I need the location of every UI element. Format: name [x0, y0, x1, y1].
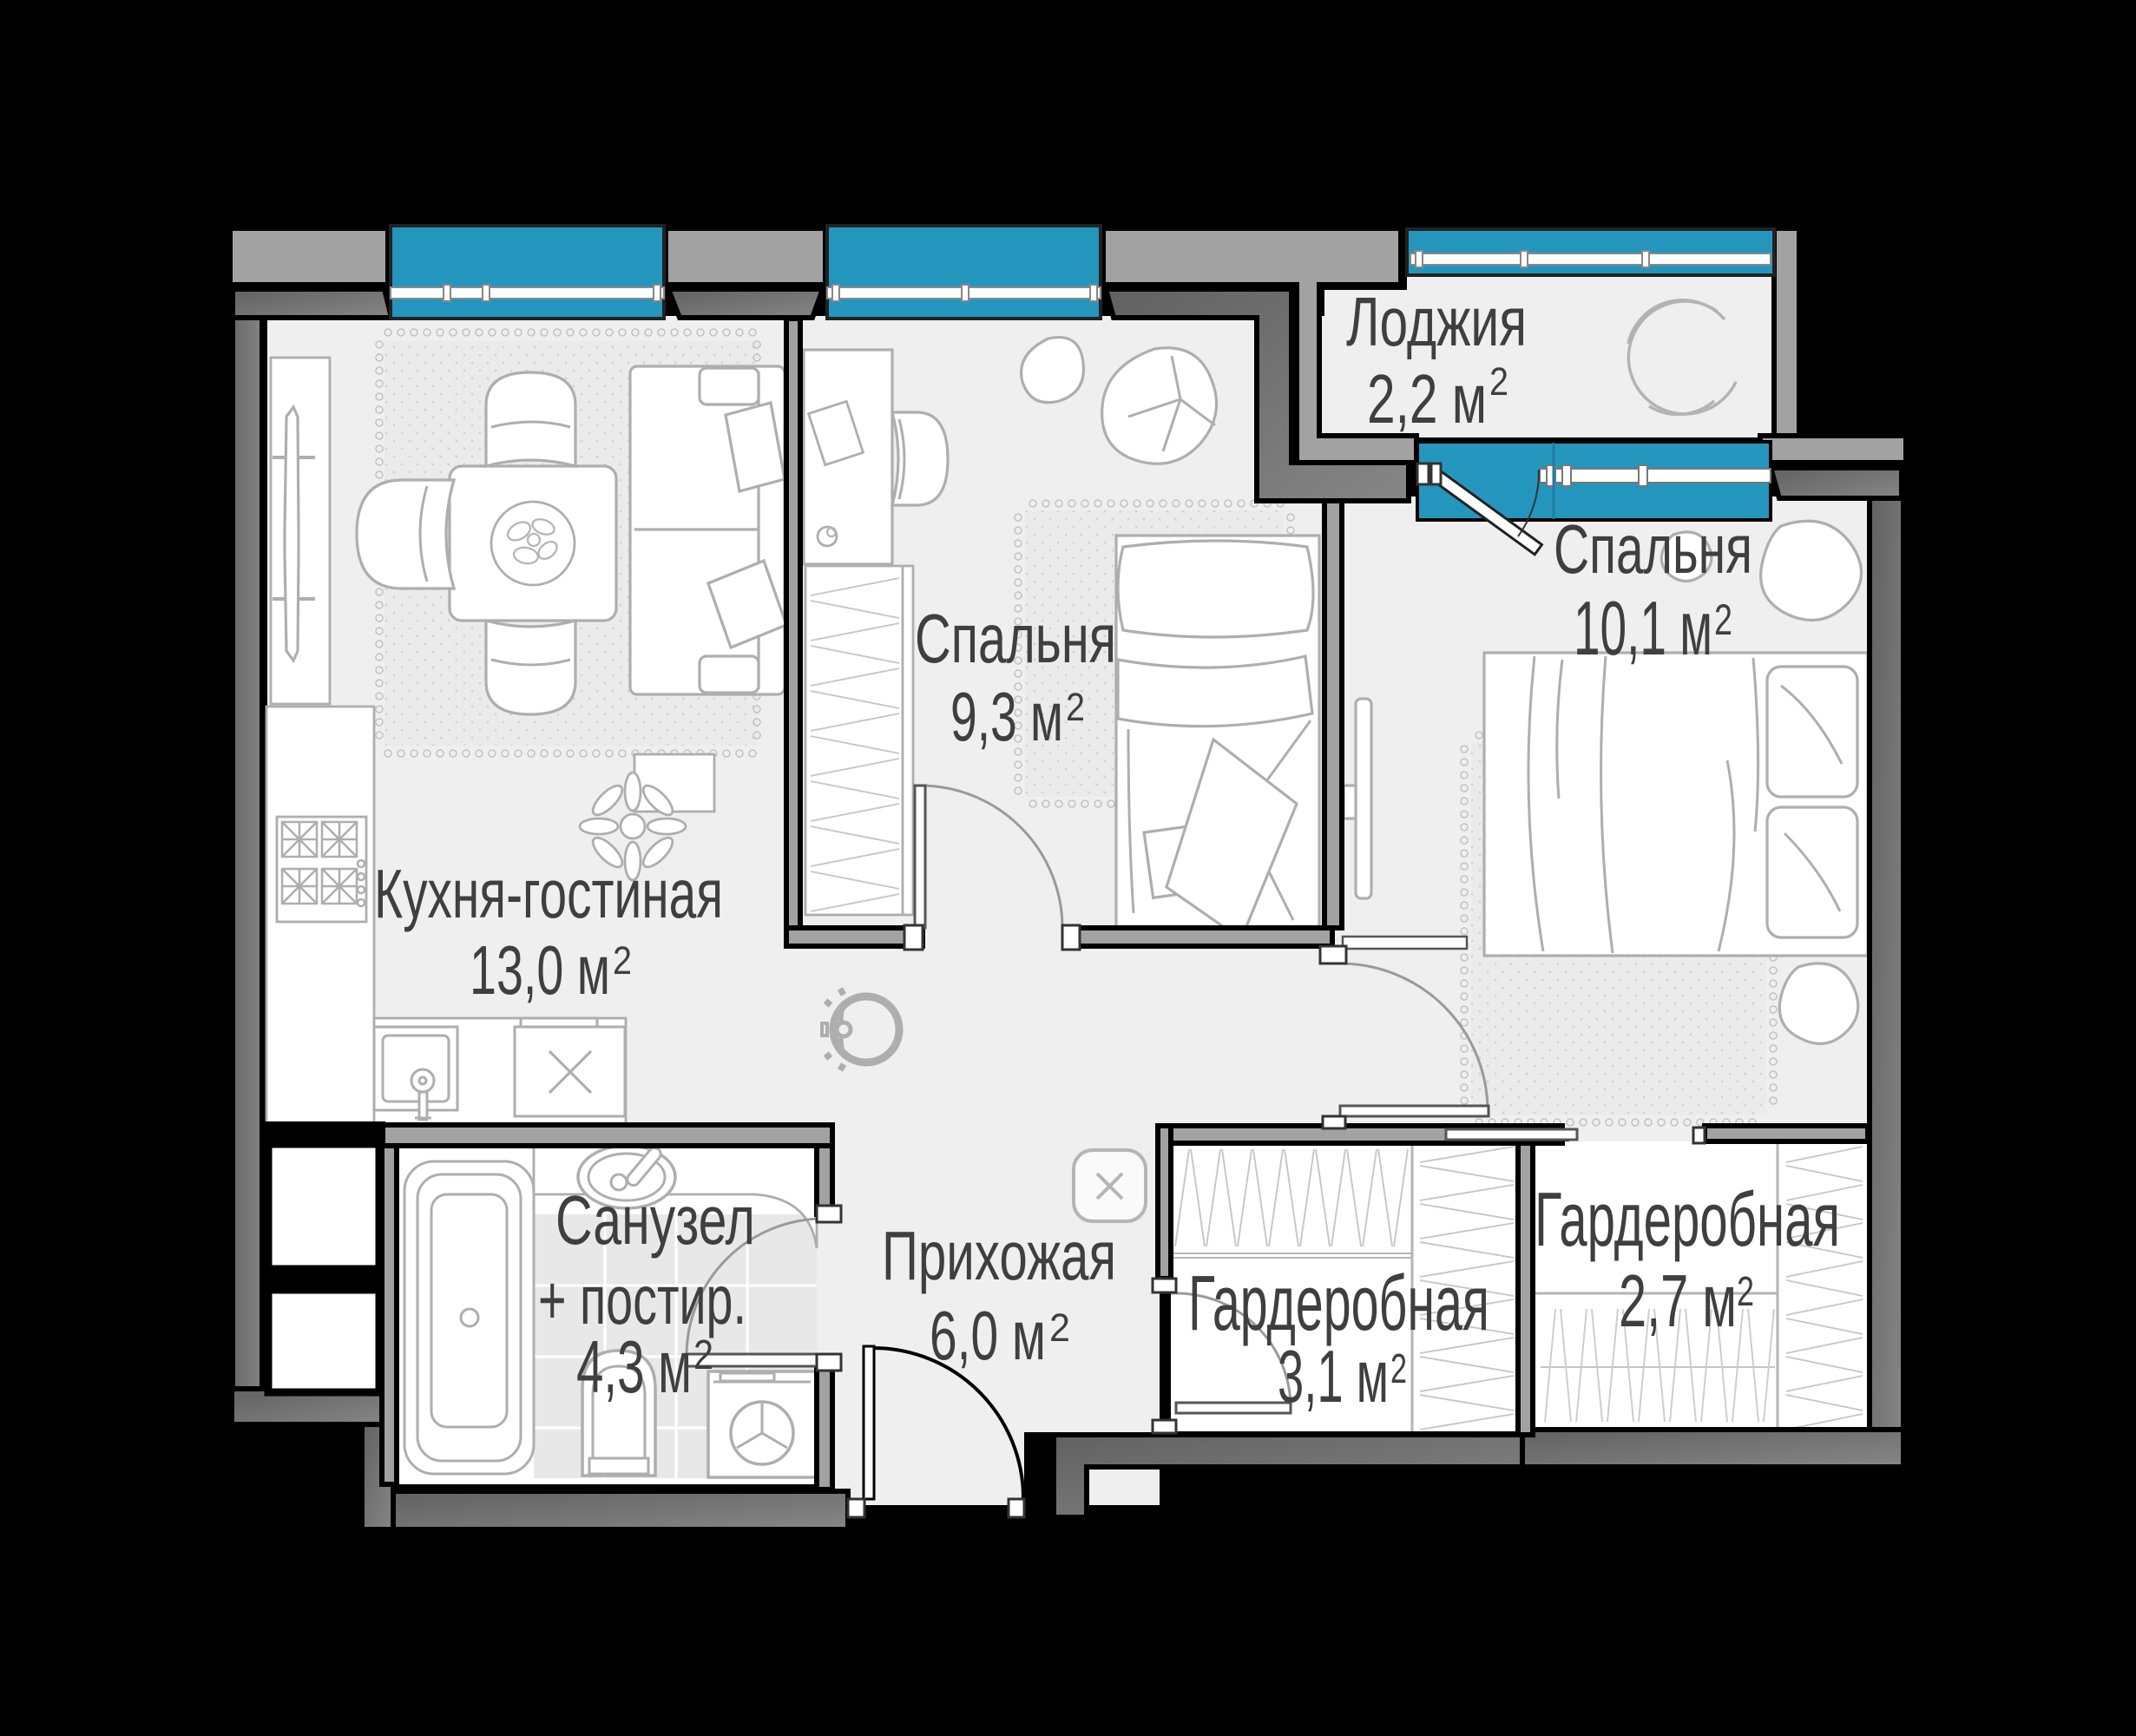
svg-text:2,2 м: 2,2 м — [1367, 360, 1487, 437]
svg-text:2: 2 — [1714, 595, 1732, 644]
svg-text:Гардеробная: Гардеробная — [1188, 1260, 1489, 1347]
svg-text:Гардеробная: Гардеробная — [1535, 1176, 1840, 1262]
svg-text:10,1 м: 10,1 м — [1574, 585, 1712, 671]
svg-text:2: 2 — [693, 1332, 713, 1378]
svg-text:4,3 м: 4,3 м — [576, 1326, 692, 1409]
svg-text:Спальня: Спальня — [1554, 510, 1752, 588]
svg-text:13,0 м: 13,0 м — [470, 931, 610, 1009]
svg-text:Кухня-гостиная: Кухня-гостиная — [374, 855, 723, 932]
svg-text:2,7 м: 2,7 м — [1619, 1260, 1737, 1343]
svg-text:Лоджия: Лоджия — [1346, 283, 1527, 360]
svg-text:2: 2 — [1489, 359, 1508, 404]
svg-text:3,1 м: 3,1 м — [1278, 1336, 1389, 1418]
svg-text:Спальня: Спальня — [915, 600, 1116, 677]
svg-text:6,0 м: 6,0 м — [930, 1297, 1046, 1374]
svg-text:2: 2 — [613, 938, 632, 983]
svg-text:2: 2 — [1390, 1346, 1407, 1392]
svg-text:Прихожая: Прихожая — [882, 1217, 1116, 1294]
svg-text:9,3 м: 9,3 м — [950, 678, 1063, 755]
svg-text:Санузел: Санузел — [555, 1181, 755, 1259]
svg-text:2: 2 — [1049, 1305, 1070, 1350]
svg-text:2: 2 — [1066, 685, 1085, 729]
svg-text:2: 2 — [1737, 1269, 1754, 1315]
